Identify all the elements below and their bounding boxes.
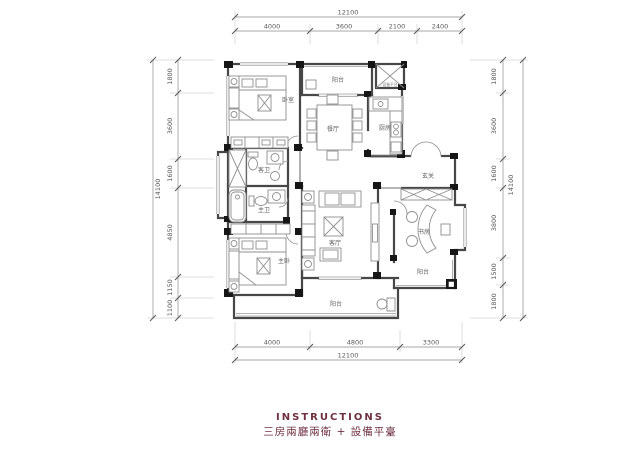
entry-door-left-icon: [411, 142, 426, 156]
caption-title: INSTRUCTIONS: [20, 412, 640, 423]
dim-bottom-total: 12100: [338, 352, 359, 360]
dimension-top: 12100 4000 3600 2100 2400: [232, 9, 465, 35]
dim-top-seg2: 3600: [336, 23, 353, 31]
label-kitchen: 厨房: [379, 124, 391, 132]
floorplan-page: 12100 4000 3600 2100 2400 4000 4800 3300…: [0, 0, 640, 451]
coffee-table-icon: [320, 217, 343, 261]
caption: INSTRUCTIONS 三房兩廳兩衛 + 設備平臺: [20, 412, 640, 439]
dim-right-seg3: 1600: [490, 165, 498, 182]
dim-top-seg3: 2100: [389, 23, 406, 31]
label-balcony-right: 阳台: [417, 268, 429, 276]
dimension-bottom: 4000 4800 3300 12100: [232, 339, 465, 364]
caption-subtitle: 三房兩廳兩衛 + 設備平臺: [20, 424, 640, 439]
label-master-bedroom: 主卧: [278, 257, 290, 265]
chair-icon: [407, 212, 418, 223]
dim-left-seg2: 3600: [166, 118, 174, 135]
wardrobe-icon: [231, 137, 288, 148]
dim-right-seg2: 3600: [490, 118, 498, 135]
dimension-right: 1800 3600 1600 3800 1500 1800 14100: [490, 57, 526, 321]
label-foyer: 玄关: [422, 172, 434, 180]
label-study: 书房: [418, 228, 430, 236]
foyer-closet-icon: [401, 189, 452, 200]
dim-left-total: 14100: [154, 179, 162, 200]
guest-bath-fixtures: [248, 151, 283, 181]
master-bath-fixtures: [249, 190, 285, 206]
dim-right-total: 14100: [507, 175, 515, 196]
dim-left-seg5: 1150: [166, 279, 174, 296]
tv-cabinet-icon: [371, 203, 379, 261]
dim-right-seg5: 1500: [490, 263, 498, 280]
dim-left-seg3: 1600: [166, 165, 174, 182]
entry-door-right-icon: [426, 142, 441, 156]
label-equipment: 设备平台: [382, 82, 397, 87]
dim-right-seg4: 3800: [490, 215, 498, 232]
chair-icon: [407, 236, 418, 247]
basin-icon: [268, 190, 285, 203]
dim-left-seg1: 1800: [166, 68, 174, 85]
dim-top-total: 12100: [338, 9, 359, 17]
planter-box-icon: [306, 80, 316, 89]
dim-bottom-seg3: 3300: [423, 339, 440, 347]
dim-bottom-seg2: 4800: [347, 339, 364, 347]
label-balcony-bottom: 阳台: [330, 300, 342, 308]
dim-right-seg1: 1800: [490, 68, 498, 85]
toilet-icon: [249, 196, 254, 206]
label-bedroom: 卧室: [282, 96, 294, 104]
dim-top-seg4: 2400: [432, 23, 449, 31]
dim-bottom-seg1: 4000: [264, 339, 281, 347]
bed-icon: [239, 76, 286, 120]
label-balcony-top: 阳台: [332, 76, 344, 84]
label-guest-bath: 客卫: [258, 166, 270, 174]
balcony-sink-icon: [377, 298, 395, 311]
dim-top-seg1: 4000: [264, 23, 281, 31]
label-master-bath: 主卫: [258, 206, 270, 214]
washer-icon: [267, 151, 283, 164]
label-living: 客厅: [329, 239, 341, 247]
dim-right-seg6: 1800: [490, 293, 498, 310]
basin-icon: [271, 172, 280, 181]
dimension-left: 14100 1800 3600 1600 4850 1150 1100: [150, 57, 181, 321]
floorplan-drawing: 12100 4000 3600 2100 2400 4000 4800 3300…: [0, 0, 640, 451]
dim-left-seg6: 1100: [166, 300, 174, 317]
chair-icon: [441, 224, 450, 235]
nightstand-icons: [229, 76, 239, 120]
shower-icon: [229, 150, 246, 187]
label-dining: 餐厅: [327, 125, 339, 133]
dim-left-seg4: 4850: [166, 224, 174, 241]
toilet-icon: [248, 152, 258, 157]
bathtub-icon: [229, 190, 246, 222]
